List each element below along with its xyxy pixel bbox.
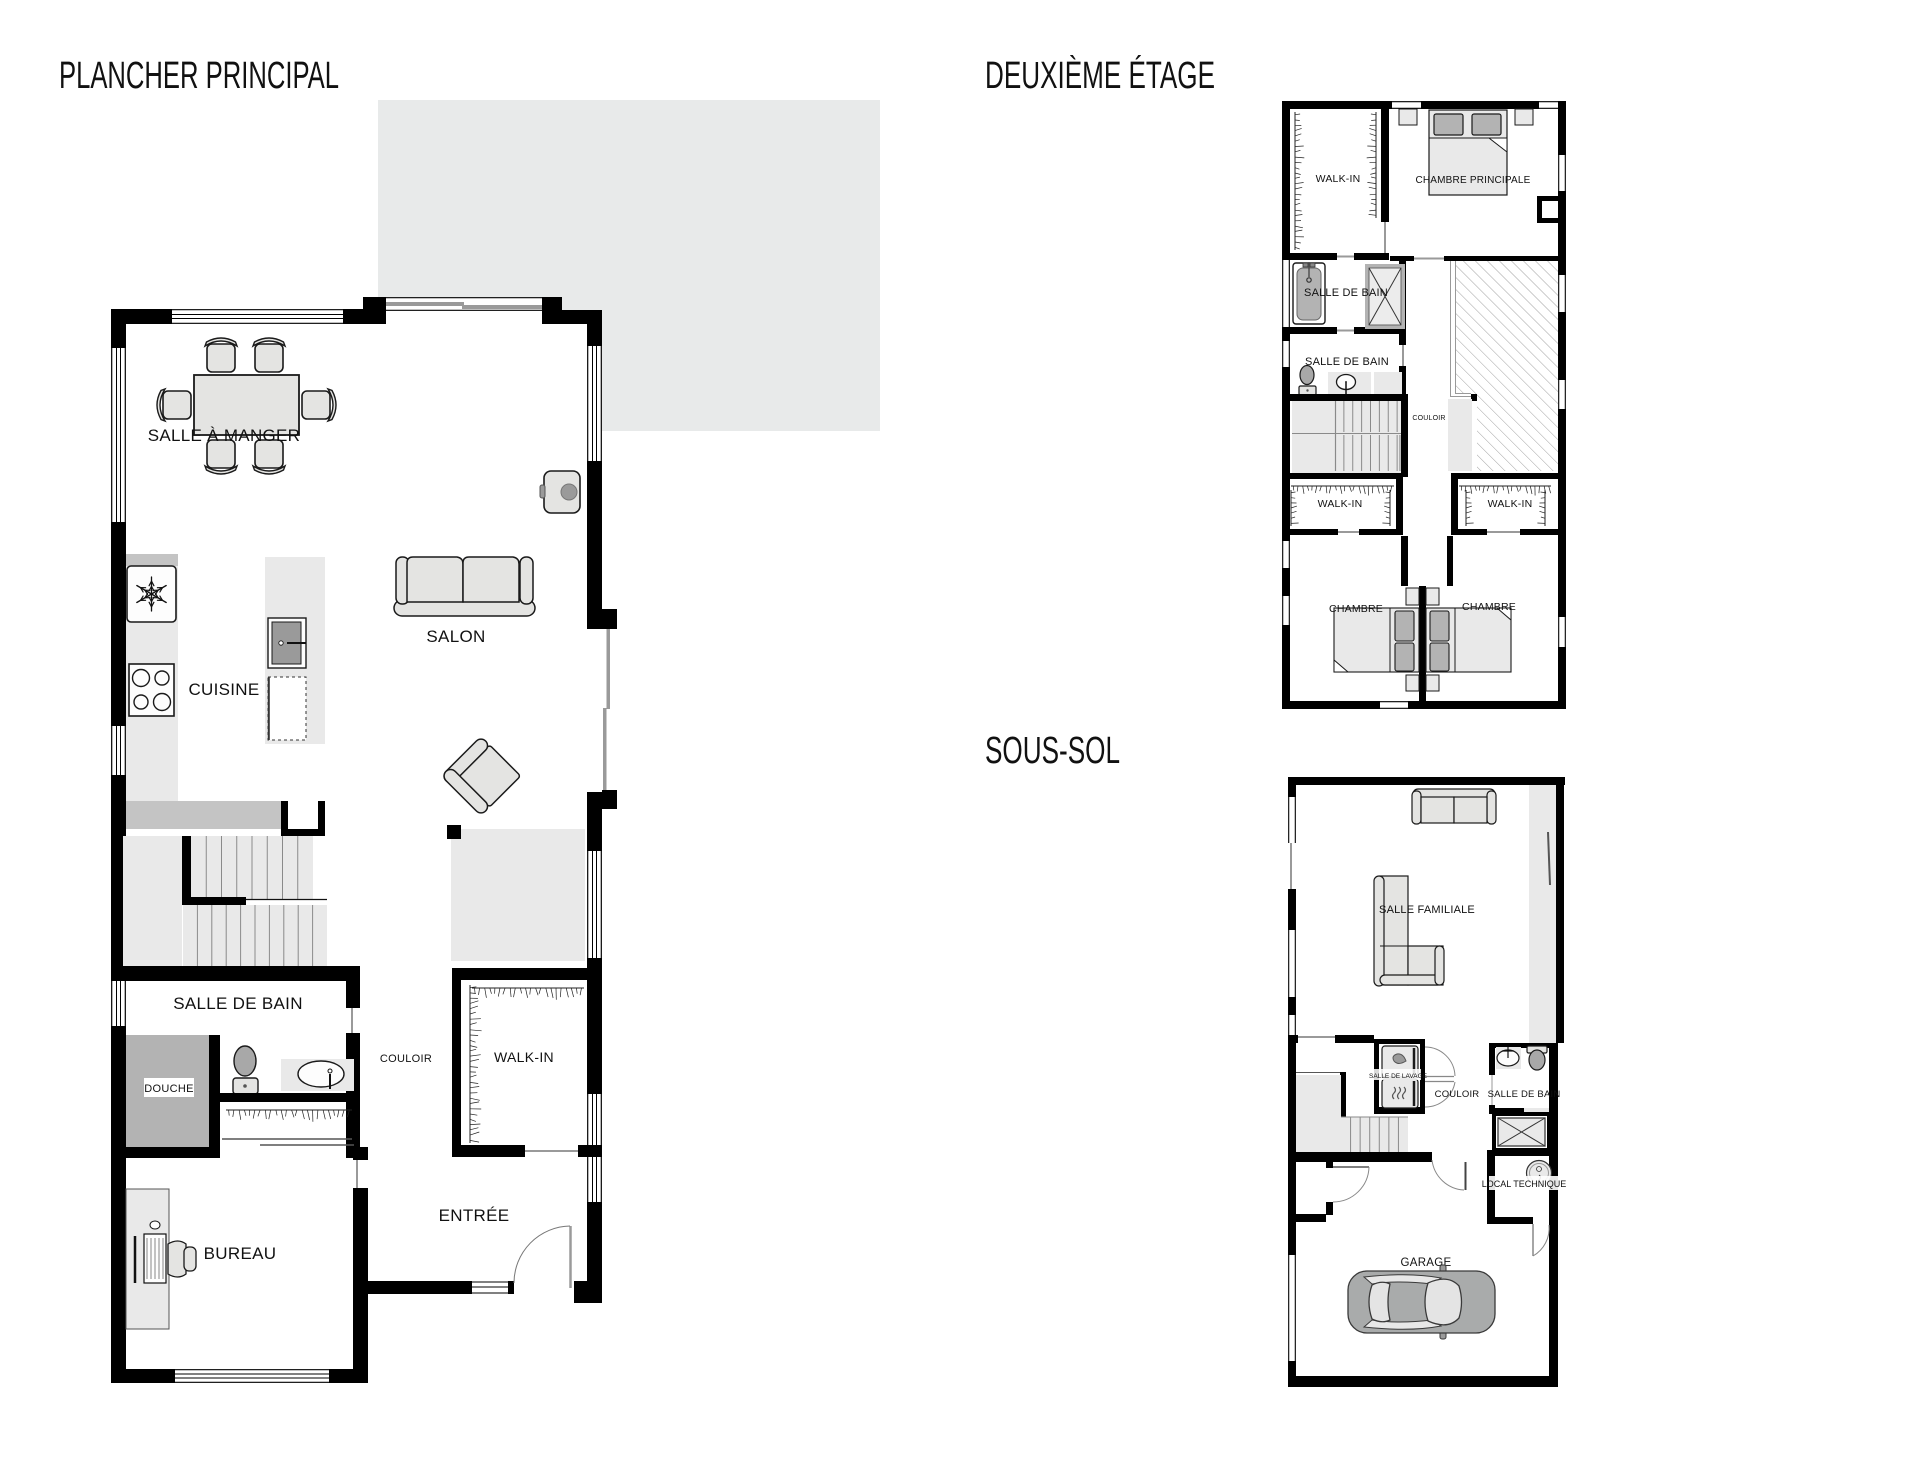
svg-text:SALLE FAMILIALE: SALLE FAMILIALE xyxy=(1379,904,1475,916)
svg-text:SALON: SALON xyxy=(426,627,485,646)
svg-text:CUISINE: CUISINE xyxy=(188,680,259,699)
svg-text:SALLE DE BAIN: SALLE DE BAIN xyxy=(173,994,303,1013)
svg-text:WALK-IN: WALK-IN xyxy=(1316,173,1361,185)
svg-text:ENTRÉE: ENTRÉE xyxy=(439,1206,510,1225)
svg-text:WALK-IN: WALK-IN xyxy=(1318,498,1363,510)
svg-text:WALK-IN: WALK-IN xyxy=(494,1049,554,1065)
svg-text:SALLE DE BAIN: SALLE DE BAIN xyxy=(1305,356,1389,368)
svg-text:COULOIR: COULOIR xyxy=(380,1053,432,1065)
svg-text:DEUXIÈME ÉTAGE: DEUXIÈME ÉTAGE xyxy=(985,54,1215,97)
svg-text:SALLE DE LAVAGE: SALLE DE LAVAGE xyxy=(1369,1073,1428,1080)
svg-text:BUREAU: BUREAU xyxy=(204,1244,277,1263)
svg-text:SOUS-SOL: SOUS-SOL xyxy=(985,730,1120,772)
svg-text:PLANCHER PRINCIPAL: PLANCHER PRINCIPAL xyxy=(59,55,339,97)
svg-text:WALK-IN: WALK-IN xyxy=(1488,498,1533,510)
svg-text:COULOIR: COULOIR xyxy=(1412,415,1445,422)
svg-text:SALLE DE BAIN: SALLE DE BAIN xyxy=(1488,1089,1561,1100)
svg-text:COULOIR: COULOIR xyxy=(1435,1089,1480,1100)
svg-text:CHAMBRE: CHAMBRE xyxy=(1462,601,1516,613)
svg-text:SALLE DE BAIN: SALLE DE BAIN xyxy=(1304,287,1388,299)
svg-text:CHAMBRE: CHAMBRE xyxy=(1329,603,1383,615)
svg-text:SALLE À MANGER: SALLE À MANGER xyxy=(148,426,301,445)
svg-text:DOUCHE: DOUCHE xyxy=(144,1083,193,1095)
svg-text:LOCAL TECHNIQUE: LOCAL TECHNIQUE xyxy=(1482,1179,1567,1189)
svg-text:CHAMBRE PRINCIPALE: CHAMBRE PRINCIPALE xyxy=(1415,175,1530,186)
